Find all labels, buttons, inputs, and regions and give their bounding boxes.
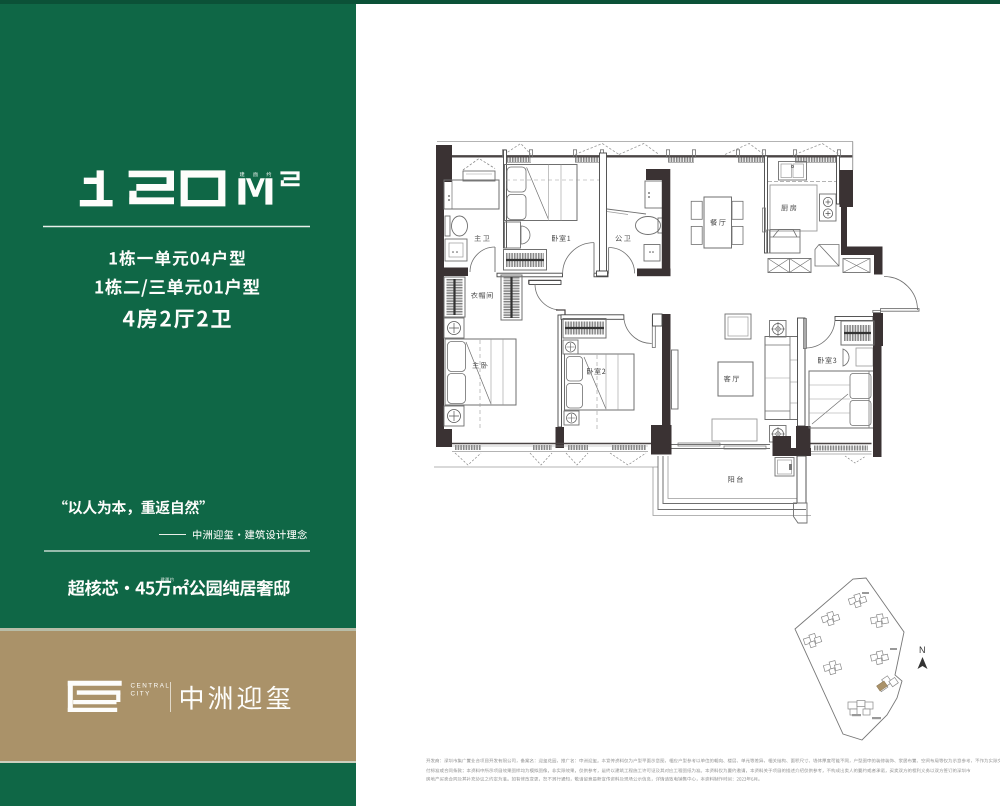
svg-text:N: N [919, 645, 926, 655]
svg-text:CENTRAL: CENTRAL [131, 683, 171, 690]
svg-text:CITY: CITY [131, 691, 151, 698]
